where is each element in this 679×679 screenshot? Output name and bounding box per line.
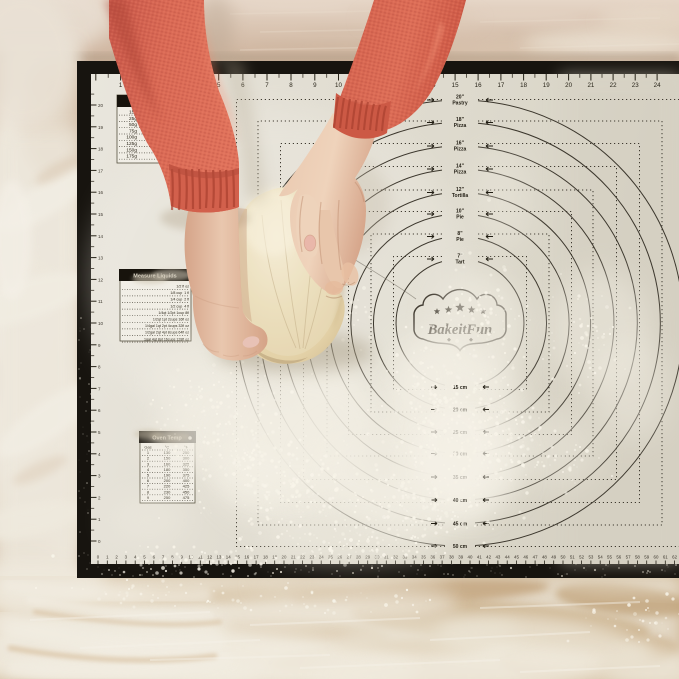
svg-text:24: 24 (654, 82, 661, 89)
svg-text:50g: 50g (129, 122, 137, 128)
svg-text:37: 37 (440, 555, 445, 560)
svg-text:1/4gal 1qt 2pt 4cups 32fl oz: 1/4gal 1qt 2pt 4cups 32fl oz (145, 324, 189, 328)
svg-text:1gal 4qt 8pt 16cups 128fl oz: 1gal 4qt 8pt 16cups 128fl oz (144, 337, 189, 341)
svg-text:56: 56 (616, 555, 621, 560)
svg-text:Pie: Pie (456, 215, 464, 221)
svg-text:20: 20 (282, 555, 287, 560)
svg-text:1/4qt 1/2pt 1cup 8fl: 1/4qt 1/2pt 1cup 8fl (158, 311, 189, 315)
svg-text:1/4 cup 2 fl: 1/4 cup 2 fl (170, 298, 189, 302)
svg-text:1/2gal 2qt 4pt 8cups 64fl oz: 1/2gal 2qt 4pt 8cups 64fl oz (145, 331, 189, 335)
svg-text:59: 59 (644, 555, 649, 560)
svg-text:49: 49 (551, 555, 556, 560)
svg-text:400: 400 (183, 478, 190, 483)
svg-text:38: 38 (449, 555, 454, 560)
svg-text:58: 58 (635, 555, 640, 560)
svg-text:14: 14 (226, 555, 231, 560)
svg-text:100g: 100g (126, 135, 137, 141)
svg-text:16: 16 (475, 82, 482, 89)
svg-text:1/2 cup 4 fl: 1/2 cup 4 fl (170, 304, 189, 308)
svg-text:52: 52 (579, 555, 584, 560)
svg-text:18: 18 (263, 555, 268, 560)
svg-text:425: 425 (183, 484, 190, 489)
svg-text:61: 61 (663, 555, 668, 560)
svg-text:Pizza: Pizza (454, 170, 467, 176)
svg-text:475: 475 (183, 495, 190, 500)
svg-text:13: 13 (216, 555, 221, 560)
svg-text:12: 12 (98, 277, 104, 282)
svg-text:220: 220 (164, 484, 171, 489)
svg-text:7: 7 (265, 82, 269, 89)
svg-text:57: 57 (626, 555, 631, 560)
svg-text:21: 21 (587, 82, 594, 89)
svg-text:230: 230 (164, 489, 171, 494)
svg-text:54: 54 (598, 555, 603, 560)
svg-text:15: 15 (98, 212, 104, 217)
svg-text:175g: 175g (126, 154, 137, 160)
svg-text:45: 45 (514, 555, 519, 560)
svg-text:450: 450 (183, 489, 190, 494)
svg-text:11: 11 (98, 299, 103, 304)
svg-text:50 cm: 50 cm (453, 544, 468, 550)
svg-text:19: 19 (98, 125, 104, 130)
svg-text:34: 34 (412, 555, 417, 560)
svg-text:Pizza: Pizza (454, 123, 467, 129)
svg-text:22: 22 (610, 82, 617, 89)
svg-text:40: 40 (468, 555, 473, 560)
svg-text:23: 23 (632, 82, 639, 89)
svg-text:51: 51 (570, 555, 575, 560)
svg-text:20: 20 (98, 103, 104, 108)
svg-text:9: 9 (313, 82, 317, 89)
svg-text:13: 13 (98, 256, 104, 261)
svg-text:Tart: Tart (455, 260, 464, 266)
svg-text:16: 16 (98, 190, 104, 195)
svg-text:47: 47 (533, 555, 538, 560)
svg-text:15 cm: 15 cm (453, 385, 468, 391)
svg-text:44: 44 (505, 555, 510, 560)
svg-text:150g: 150g (126, 147, 137, 153)
svg-text:Pie: Pie (456, 237, 464, 243)
svg-text:36: 36 (430, 555, 435, 560)
svg-text:190: 190 (164, 473, 171, 478)
svg-text:39: 39 (458, 555, 463, 560)
svg-text:62: 62 (672, 555, 677, 560)
svg-text:20: 20 (565, 82, 572, 89)
svg-text:125g: 125g (126, 141, 137, 147)
svg-text:12: 12 (207, 555, 212, 560)
svg-text:50: 50 (561, 555, 566, 560)
svg-text:43: 43 (495, 555, 500, 560)
svg-text:45 cm: 45 cm (453, 522, 468, 528)
svg-text:41: 41 (477, 555, 482, 560)
svg-text:375: 375 (183, 473, 190, 478)
svg-text:16: 16 (244, 555, 249, 560)
svg-text:10: 10 (98, 321, 104, 326)
svg-text:18: 18 (98, 147, 104, 152)
svg-text:Pastry: Pastry (452, 101, 468, 107)
svg-text:10: 10 (335, 82, 342, 89)
svg-text:55: 55 (607, 555, 612, 560)
svg-text:200: 200 (164, 478, 171, 483)
svg-text:Tortilla: Tortilla (452, 193, 469, 199)
svg-text:17: 17 (497, 82, 504, 89)
svg-text:18: 18 (520, 82, 527, 89)
svg-text:8: 8 (289, 82, 293, 89)
svg-text:17: 17 (98, 168, 104, 173)
svg-text:Pizza: Pizza (454, 147, 467, 153)
svg-text:17: 17 (254, 555, 259, 560)
svg-text:48: 48 (542, 555, 547, 560)
svg-text:1/8 cup 1 fl: 1/8 cup 1 fl (170, 291, 189, 295)
svg-text:14: 14 (98, 234, 104, 239)
svg-text:75g: 75g (129, 128, 137, 134)
svg-text:19: 19 (543, 82, 550, 89)
svg-text:1/2qt 1pt 2cups 16fl oz: 1/2qt 1pt 2cups 16fl oz (153, 318, 189, 322)
svg-text:60: 60 (654, 555, 659, 560)
svg-text:1/2 fl oz: 1/2 fl oz (176, 285, 189, 289)
svg-text:53: 53 (588, 555, 593, 560)
svg-text:1: 1 (119, 82, 123, 89)
svg-text:42: 42 (486, 555, 491, 560)
svg-text:46: 46 (523, 555, 528, 560)
svg-text:35: 35 (421, 555, 426, 560)
svg-text:15: 15 (452, 82, 459, 89)
